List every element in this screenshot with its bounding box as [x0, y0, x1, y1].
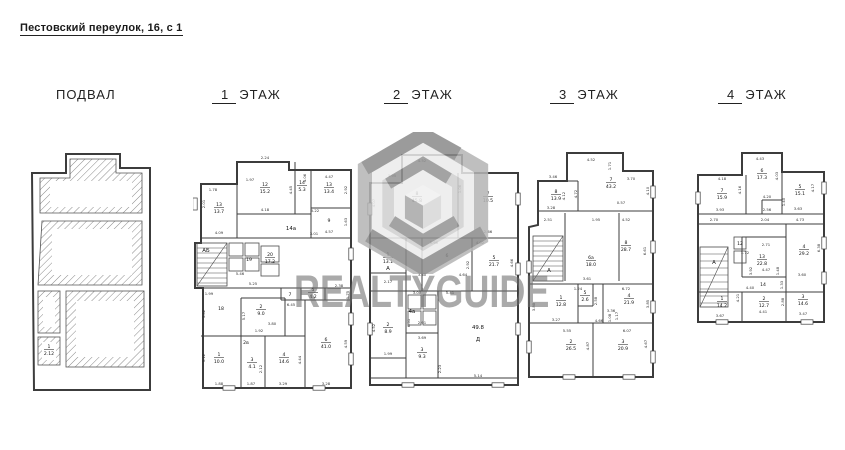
floor-word: ЭТАЖ	[411, 87, 453, 102]
plan-letter-label: 14а	[286, 226, 296, 232]
svg-text:2: 2	[763, 296, 766, 302]
svg-text:14.6: 14.6	[279, 359, 289, 365]
dimension-label: 3.47	[799, 311, 808, 316]
dimension-label: 2.92	[343, 185, 348, 194]
room-label: 9	[328, 218, 331, 224]
svg-text:8.9: 8.9	[384, 329, 391, 335]
svg-text:3: 3	[251, 357, 254, 363]
dimension-label: 6.07	[623, 328, 632, 333]
svg-text:15.2: 15.2	[260, 189, 270, 195]
dimension-label: 4.10	[645, 186, 650, 195]
svg-text:4.1: 4.1	[248, 364, 255, 370]
dimension-label: 4.52	[622, 217, 631, 222]
dimension-label: 2.58	[593, 296, 598, 305]
plan-letter-label: Д	[476, 337, 480, 343]
svg-text:13.7: 13.7	[214, 209, 224, 215]
dimension-label: 4.09	[215, 230, 224, 235]
dimension-label: 4.45	[288, 185, 293, 194]
svg-text:6: 6	[761, 168, 764, 174]
dimension-label: 1.48	[775, 266, 780, 275]
dimension-label: 4.44	[297, 355, 302, 364]
dimension-label: 1.17	[614, 311, 619, 320]
dimension-label: 1.88	[215, 381, 224, 386]
svg-text:2: 2	[387, 322, 390, 328]
svg-text:12: 12	[262, 182, 268, 188]
dimension-label: 3.60	[798, 272, 807, 277]
dimension-label: 3.46	[549, 174, 558, 179]
dimension-label: 3.67	[716, 313, 725, 318]
svg-text:2в: 2в	[243, 340, 249, 346]
floor-title-4: 4ЭТАЖ	[718, 87, 787, 102]
dimension-label: 2.70	[710, 217, 719, 222]
floor-title-2: 2ЭТАЖ	[384, 87, 453, 102]
floor-number: 4	[718, 87, 742, 104]
dimension-label: 4.52	[371, 323, 376, 332]
svg-text:14: 14	[760, 282, 766, 288]
watermark-text: REALTYGUIDE	[294, 266, 549, 318]
svg-text:4: 4	[628, 293, 631, 299]
svg-text:12: 12	[737, 241, 743, 247]
dimension-label: 3.85	[645, 299, 650, 308]
dimension-label: 2.24	[261, 155, 270, 160]
svg-text:13: 13	[326, 182, 332, 188]
dimension-label: 1.92	[255, 328, 264, 333]
dimension-label: 4.72	[573, 189, 578, 198]
svg-text:13: 13	[216, 202, 222, 208]
dimension-label: 4.03	[774, 171, 779, 180]
svg-text:19: 19	[246, 257, 252, 263]
dimension-label: 3.61	[583, 276, 592, 281]
dimension-label: 5.22	[311, 208, 320, 213]
floor-word: ЭТАЖ	[745, 87, 787, 102]
svg-text:10.0: 10.0	[214, 359, 224, 365]
dimension-label: 4.12	[561, 191, 566, 200]
floor-title-1: 1ЭТАЖ	[212, 87, 281, 102]
svg-text:28.7: 28.7	[621, 247, 631, 253]
watermark-logo realtyguide-cube-icon	[356, 132, 490, 279]
svg-text:14.2: 14.2	[717, 303, 727, 309]
svg-text:4: 4	[803, 244, 806, 250]
floor-word: ЭТАЖ	[577, 87, 619, 102]
dimension-label: 2.01	[201, 199, 206, 208]
dimension-label: 2.23	[437, 364, 442, 373]
dimension-label: 5.25	[249, 281, 258, 286]
svg-text:1: 1	[560, 295, 563, 301]
floor-title-3: 3ЭТАЖ	[550, 87, 619, 102]
dimension-label: 4.57	[325, 229, 334, 234]
dimension-label: 3.29	[279, 381, 288, 386]
dimension-label: 6.61	[642, 246, 647, 255]
dimension-label: 3.01	[310, 231, 319, 236]
dimension-label: 4.06	[302, 173, 307, 182]
dimension-label: 4.41	[759, 309, 768, 314]
dimension-label: 1.72	[741, 250, 750, 255]
svg-text:26.5: 26.5	[566, 346, 576, 352]
dimension-label: 6.51	[406, 318, 411, 327]
dimension-label: 2.04	[761, 217, 770, 222]
svg-text:14.6: 14.6	[798, 301, 808, 307]
dimension-label: 5.55	[563, 328, 572, 333]
svg-text:3: 3	[622, 339, 625, 345]
svg-text:5.3: 5.3	[298, 187, 305, 193]
dimension-label: 4.66	[595, 318, 604, 323]
dimension-label: 4.16	[737, 185, 742, 194]
dimension-label: 1.97	[246, 177, 255, 182]
svg-text:2.6: 2.6	[581, 297, 588, 303]
dimension-label: 4.43	[756, 156, 765, 161]
svg-text:43.2: 43.2	[606, 184, 616, 190]
dimension-label: 4.18	[261, 207, 270, 212]
dimension-label: 4.17	[810, 183, 815, 192]
svg-text:13: 13	[759, 254, 765, 260]
floor-number: 1	[212, 87, 236, 104]
dimension-label: 3.69	[418, 335, 427, 340]
svg-text:3: 3	[802, 294, 805, 300]
floorplan-4: 715.9617.3515.1121322.814429.2114.2212.7…	[686, 142, 845, 332]
dimension-label: 1.24	[574, 286, 583, 291]
plan-letter-label: 49.8	[472, 325, 485, 331]
dimension-label: 3.92	[748, 266, 753, 275]
dimension-label: 4.20	[763, 194, 772, 199]
dimension-label: 4.21	[735, 293, 740, 302]
svg-text:13.4: 13.4	[324, 189, 334, 195]
floor-title-podval: ПОДВАЛ	[56, 87, 116, 102]
svg-text:5: 5	[493, 255, 496, 261]
dimension-label: 4.52	[587, 157, 596, 162]
svg-text:5: 5	[584, 290, 587, 296]
dimension-label: 3.93	[716, 207, 725, 212]
dimension-label: 1.33	[779, 280, 784, 289]
svg-text:8: 8	[555, 189, 558, 195]
room-label: 14	[760, 282, 766, 288]
svg-text:17.3: 17.3	[757, 175, 767, 181]
svg-text:1: 1	[721, 296, 724, 302]
dimension-label: 1.63	[343, 217, 348, 226]
plan-letter-label: АБ	[202, 248, 210, 254]
dimension-label: 2.91	[418, 320, 427, 325]
svg-text:9: 9	[328, 218, 331, 224]
dimension-label: 1.99	[205, 291, 214, 296]
dimension-label: 5.46	[236, 271, 245, 276]
dimension-label: 3.28	[547, 205, 556, 210]
dimension-label: 1.99	[384, 351, 393, 356]
svg-text:29.2: 29.2	[799, 251, 809, 257]
dimension-label: 1.87	[247, 381, 256, 386]
dimension-label: 3.27	[552, 317, 561, 322]
dimension-label: 4.40	[746, 285, 755, 290]
page-title: Пестовский переулок, 16, с 1	[20, 22, 183, 36]
dimension-label: 4.59	[343, 339, 348, 348]
svg-text:7: 7	[289, 292, 292, 298]
dimension-label: 1.08	[607, 313, 612, 322]
dimension-label: 5.17	[241, 311, 246, 320]
floor-word: ПОДВАЛ	[56, 87, 116, 102]
svg-text:7: 7	[721, 188, 724, 194]
svg-text:8: 8	[625, 240, 628, 246]
dimension-label: 3.70	[627, 176, 636, 181]
dimension-label: 3.62	[201, 309, 206, 318]
svg-text:9.3: 9.3	[418, 354, 425, 360]
dimension-label: 4.87	[585, 341, 590, 350]
svg-text:13.9: 13.9	[551, 196, 561, 202]
dimension-label: 2.71	[762, 242, 771, 247]
svg-text:18: 18	[218, 306, 224, 312]
room-label: 18	[218, 306, 224, 312]
dimension-label: 3.28	[322, 381, 331, 386]
svg-text:2: 2	[570, 339, 573, 345]
dimension-label: 6.72	[622, 286, 631, 291]
dimension-label: 3.63	[794, 206, 803, 211]
dimension-label: 1.40	[781, 197, 786, 206]
floor-number: 2	[384, 87, 408, 104]
dimension-label: 2.12	[258, 364, 263, 373]
svg-text:2.12: 2.12	[44, 351, 54, 357]
dimension-label: 3.80	[268, 321, 277, 326]
svg-text:18.0: 18.0	[586, 262, 596, 268]
svg-text:4: 4	[283, 352, 286, 358]
scanned-floorplan-page: Пестовский переулок, 16, с 1 ПОДВАЛ 1ЭТА…	[0, 0, 845, 450]
svg-text:15.1: 15.1	[795, 191, 805, 197]
svg-text:5: 5	[799, 184, 802, 190]
plan-letter-label: А	[712, 260, 716, 266]
floor-number: 3	[550, 87, 574, 104]
svg-text:1: 1	[48, 344, 51, 350]
svg-text:9.0: 9.0	[257, 311, 264, 317]
room-label: 12	[737, 241, 743, 247]
svg-text:15.9: 15.9	[717, 195, 727, 201]
dimension-label: 4.67	[643, 339, 648, 348]
dimension-label: 5.14	[474, 373, 483, 378]
room-label: 7	[289, 292, 292, 298]
svg-text:20: 20	[267, 252, 273, 258]
dimension-label: 4.18	[718, 176, 727, 181]
dimension-label: 5.12	[201, 353, 206, 362]
dimension-label: 4.47	[325, 174, 334, 179]
dimension-label: 4.47	[762, 267, 771, 272]
floorplan-podval: 12.12	[28, 145, 153, 398]
dimension-label: 4.73	[796, 217, 805, 222]
svg-text:6: 6	[325, 337, 328, 343]
dimension-label: 6.38	[816, 243, 821, 252]
dimension-label: 2.56	[763, 207, 772, 212]
svg-text:17.2: 17.2	[265, 259, 275, 265]
svg-text:2: 2	[260, 304, 263, 310]
dimension-label: 2.88	[780, 297, 785, 306]
floor-word: ЭТАЖ	[239, 87, 281, 102]
svg-text:6а: 6а	[588, 255, 594, 261]
svg-text:7: 7	[610, 177, 613, 183]
svg-text:20.9: 20.9	[618, 346, 628, 352]
svg-text:12.8: 12.8	[556, 302, 566, 308]
dimension-label: 1.78	[209, 187, 218, 192]
svg-text:1: 1	[218, 352, 221, 358]
dimension-label: 1.95	[592, 217, 601, 222]
svg-text:21.9: 21.9	[624, 300, 634, 306]
svg-text:41.0: 41.0	[321, 344, 331, 350]
room-label: 19	[246, 257, 252, 263]
dimension-label: 1.71	[607, 161, 612, 170]
dimension-label: 0.57	[617, 200, 626, 205]
dimension-label: 2.51	[544, 217, 553, 222]
svg-text:3: 3	[421, 347, 424, 353]
room-label: 2в	[243, 340, 249, 346]
